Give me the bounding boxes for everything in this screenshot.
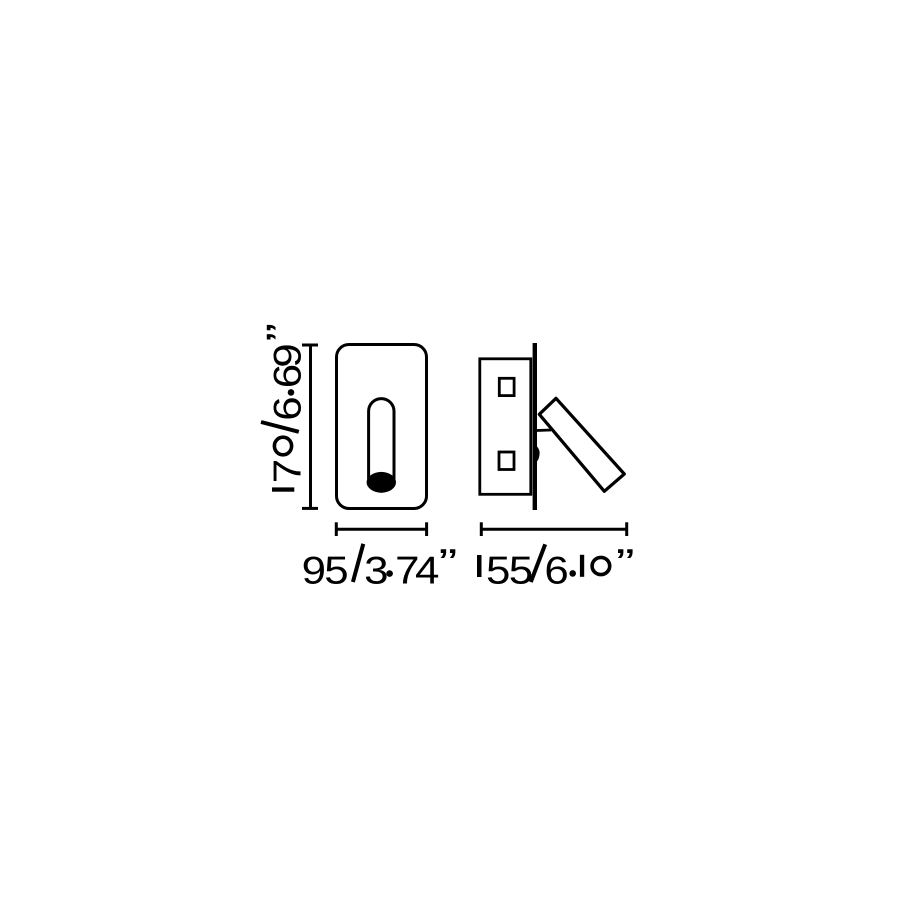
svg-text:”: ” xyxy=(439,541,458,584)
svg-text:5: 5 xyxy=(324,548,348,592)
svg-text:3: 3 xyxy=(364,548,388,592)
svg-text:6: 6 xyxy=(265,396,309,420)
svg-text:9: 9 xyxy=(302,548,326,592)
svg-text:9: 9 xyxy=(265,343,309,367)
svg-text:5: 5 xyxy=(486,548,510,592)
svg-text:”: ” xyxy=(616,541,635,584)
svg-text:5: 5 xyxy=(509,548,533,592)
svg-text:4: 4 xyxy=(415,548,439,592)
svg-text:”: ” xyxy=(259,323,302,342)
svg-text:6: 6 xyxy=(544,548,568,592)
svg-text:7: 7 xyxy=(265,459,309,483)
